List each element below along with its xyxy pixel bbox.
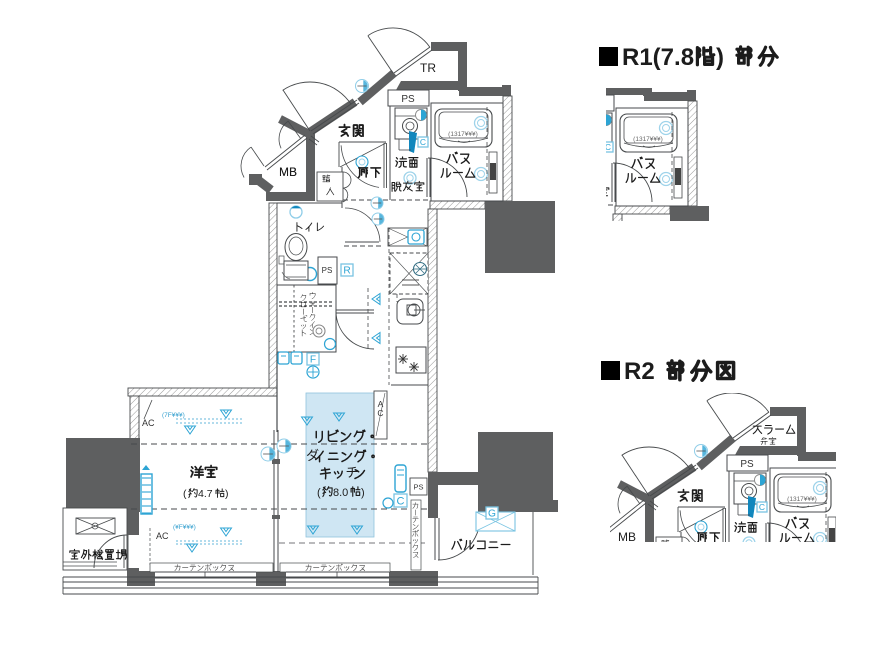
svg-text:PS: PS	[322, 266, 333, 275]
svg-text:(7F¥¥¥): (7F¥¥¥)	[162, 412, 185, 419]
svg-text:R: R	[343, 266, 350, 277]
svg-text:ダ: ダ	[306, 448, 319, 463]
svg-text:PS: PS	[401, 94, 415, 105]
svg-text:(: (	[183, 488, 187, 500]
svg-text:8.0: 8.0	[333, 487, 348, 499]
svg-text:(: (	[317, 487, 321, 499]
svg-text:(1317¥¥¥): (1317¥¥¥)	[448, 131, 478, 138]
svg-text:C: C	[420, 137, 426, 147]
svg-text:G: G	[488, 509, 496, 520]
svg-text:R2: R2	[624, 358, 655, 385]
svg-text:AC: AC	[142, 418, 155, 428]
svg-text:AC: AC	[156, 531, 169, 541]
svg-text:C: C	[377, 408, 383, 418]
svg-text:): )	[716, 44, 724, 71]
svg-text:C: C	[397, 495, 405, 507]
svg-text:): )	[225, 488, 229, 500]
svg-text:R1(7.8: R1(7.8	[622, 44, 694, 71]
svg-text:4.7: 4.7	[198, 488, 213, 500]
svg-text:(¥F¥¥¥): (¥F¥¥¥)	[173, 524, 196, 531]
svg-text:): )	[361, 487, 365, 499]
svg-text:PS: PS	[413, 483, 423, 492]
svg-text:F: F	[310, 355, 316, 366]
svg-text:TR: TR	[420, 61, 436, 75]
svg-text:MB: MB	[279, 165, 297, 179]
